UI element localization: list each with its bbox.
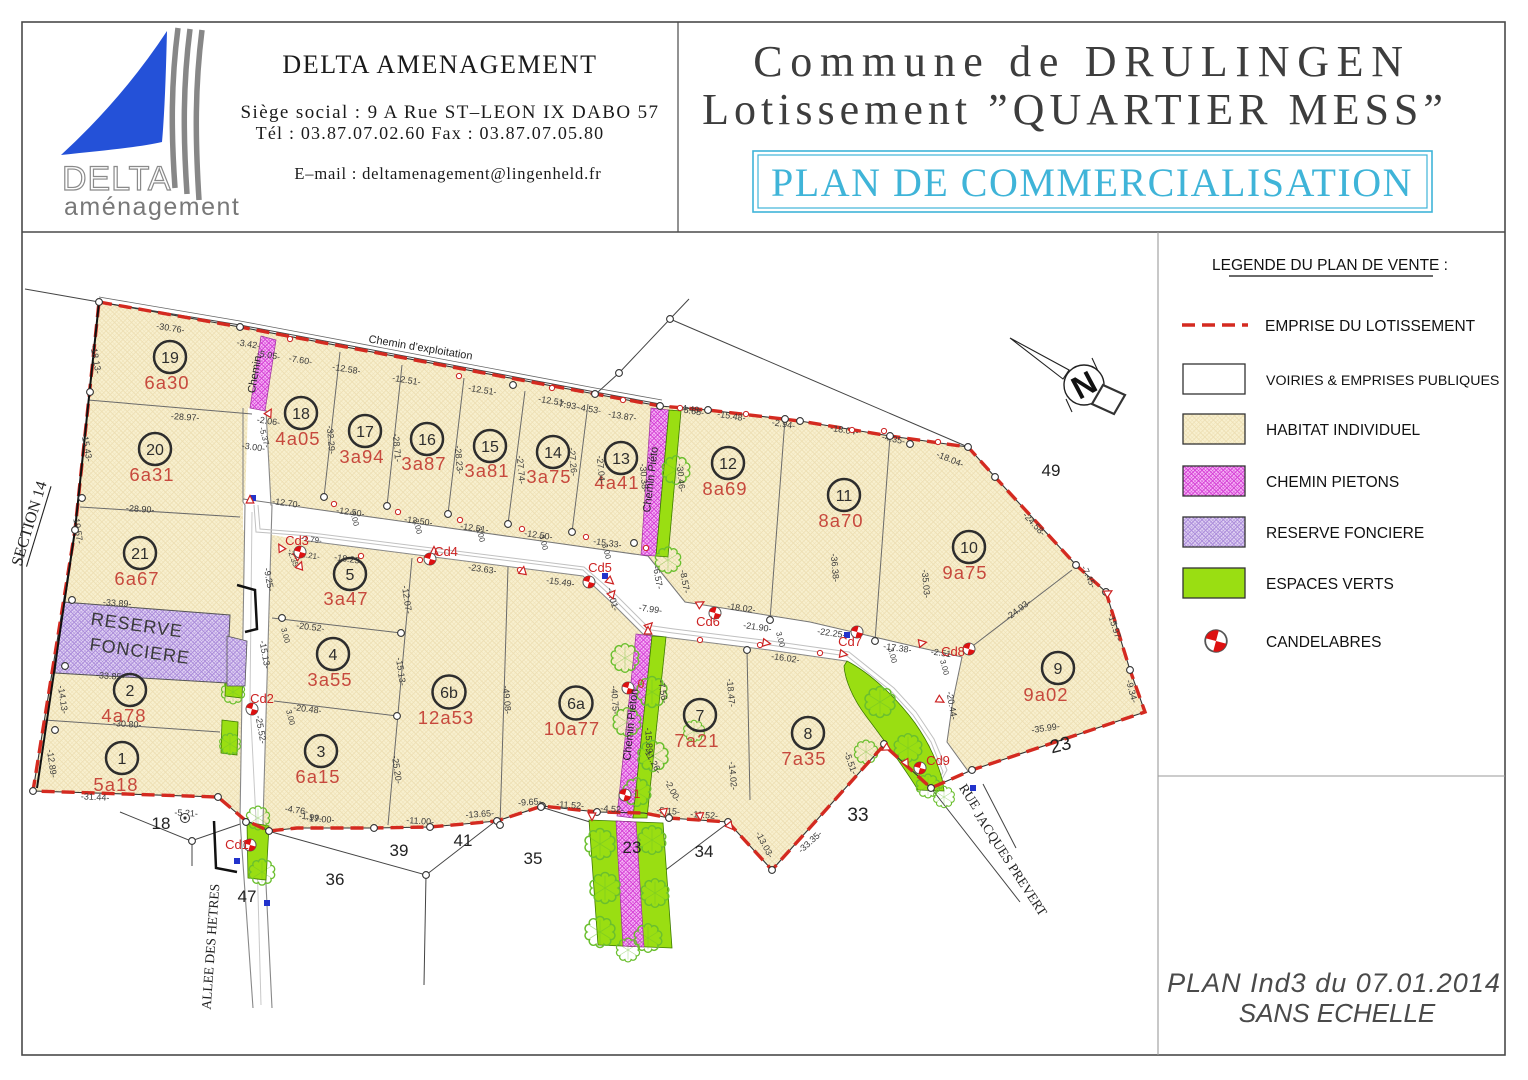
- svg-text:Commune de DRULINGEN: Commune de DRULINGEN: [753, 37, 1411, 86]
- svg-text:3: 3: [317, 744, 326, 761]
- svg-text:6a31: 6a31: [129, 464, 174, 485]
- svg-text:JACQUES PREVERT: JACQUES PREVERT: [971, 808, 1050, 919]
- svg-text:23: 23: [623, 838, 642, 857]
- svg-text:6a: 6a: [567, 696, 585, 713]
- svg-text:19: 19: [161, 350, 179, 367]
- svg-text:21: 21: [131, 546, 149, 563]
- svg-text:12: 12: [719, 456, 737, 473]
- svg-text:HABITAT INDIVIDUEL: HABITAT INDIVIDUEL: [1266, 422, 1421, 439]
- svg-text:Tél : 03.87.07.02.60 Fax : 03: Tél : 03.87.07.02.60 Fax : 03.87.07.05.8…: [256, 123, 605, 143]
- svg-text:35: 35: [524, 849, 543, 868]
- svg-text:Siège social : 9 A Rue ST–LEO: Siège social : 9 A Rue ST–LEON IX DABO 5…: [241, 102, 660, 123]
- svg-text:3a47: 3a47: [323, 588, 368, 609]
- svg-text:-13.65-: -13.65-: [465, 808, 494, 820]
- svg-text:3a81: 3a81: [464, 460, 509, 481]
- svg-text:2: 2: [126, 683, 135, 700]
- svg-text:7a21: 7a21: [674, 730, 719, 751]
- svg-text:11: 11: [836, 488, 853, 505]
- svg-text:9a02: 9a02: [1023, 684, 1068, 705]
- svg-text:4a05: 4a05: [275, 428, 320, 449]
- svg-text:36: 36: [326, 870, 345, 889]
- svg-text:8a69: 8a69: [702, 478, 747, 499]
- svg-text:-40.75-: -40.75-: [609, 685, 620, 714]
- svg-text:10: 10: [960, 540, 978, 557]
- svg-text:41: 41: [454, 831, 473, 850]
- svg-text:E–mail : deltamenagement@linge: E–mail : deltamenagement@lingenheld.fr: [294, 164, 601, 183]
- svg-text:RUE: RUE: [956, 781, 983, 812]
- svg-text:7a35: 7a35: [781, 748, 826, 769]
- svg-text:5: 5: [346, 567, 355, 584]
- svg-text:RESERVE FONCIERE: RESERVE FONCIERE: [1266, 525, 1424, 542]
- svg-text:9a75: 9a75: [942, 562, 987, 583]
- svg-text:Cd4: Cd4: [434, 544, 458, 559]
- svg-text:aménagement: aménagement: [64, 193, 240, 221]
- svg-text:PLAN DE COMMERCIALISATION: PLAN DE COMMERCIALISATION: [771, 160, 1413, 205]
- svg-text:13: 13: [612, 451, 630, 468]
- svg-text:1: 1: [118, 751, 127, 768]
- svg-text:6a67: 6a67: [114, 568, 159, 589]
- svg-text:34: 34: [695, 842, 714, 861]
- svg-text:Lotissement ”QUARTIER MESS”: Lotissement ”QUARTIER MESS”: [702, 85, 1448, 134]
- svg-text:49: 49: [1042, 461, 1061, 480]
- svg-text:-33.85-: -33.85-: [96, 670, 125, 682]
- svg-text:12a53: 12a53: [418, 707, 474, 728]
- svg-text:8: 8: [804, 726, 813, 743]
- svg-text:Cd6: Cd6: [696, 614, 720, 629]
- svg-text:6b: 6b: [440, 685, 458, 702]
- svg-text:DELTA AMENAGEMENT: DELTA AMENAGEMENT: [282, 50, 597, 79]
- svg-text:ESPACES VERTS: ESPACES VERTS: [1266, 576, 1394, 593]
- svg-text:18: 18: [292, 406, 310, 423]
- svg-text:9: 9: [1054, 661, 1063, 678]
- svg-text:-33.89-: -33.89-: [103, 597, 132, 609]
- svg-text:3a94: 3a94: [339, 446, 384, 467]
- svg-text:-28.90-: -28.90-: [126, 503, 155, 515]
- svg-text:10a77: 10a77: [544, 718, 600, 739]
- svg-text:18: 18: [152, 814, 171, 833]
- svg-text:4: 4: [329, 647, 338, 664]
- svg-text:3a55: 3a55: [307, 669, 352, 690]
- svg-text:6a15: 6a15: [295, 766, 340, 787]
- svg-text:0: 0: [638, 677, 645, 691]
- svg-text:-11.52-: -11.52-: [556, 799, 584, 811]
- svg-text:PLAN Ind3 du 07.01.2014: PLAN Ind3 du 07.01.2014: [1167, 968, 1501, 998]
- svg-text:Cd1: Cd1: [225, 837, 249, 852]
- svg-text:EMPRISE DU LOTISSEMENT: EMPRISE DU LOTISSEMENT: [1265, 318, 1476, 335]
- svg-text:3a75: 3a75: [526, 466, 571, 487]
- svg-text:CHEMIN PIETONS: CHEMIN PIETONS: [1266, 474, 1399, 491]
- svg-text:-11.52-: -11.52-: [690, 809, 718, 821]
- svg-text:16: 16: [418, 432, 436, 449]
- svg-text:33: 33: [847, 805, 868, 826]
- svg-text:-28.97-: -28.97-: [171, 411, 200, 423]
- svg-text:14: 14: [544, 445, 562, 462]
- svg-text:ALLEE DES HETRES: ALLEE DES HETRES: [199, 883, 223, 1010]
- svg-text:Cd2: Cd2: [250, 691, 274, 706]
- svg-text:15: 15: [481, 439, 499, 456]
- svg-text:-30.80-: -30.80-: [113, 718, 142, 730]
- svg-text:3a87: 3a87: [401, 453, 446, 474]
- svg-text:SANS ECHELLE: SANS ECHELLE: [1239, 998, 1436, 1028]
- svg-text:39: 39: [390, 841, 409, 860]
- svg-text:-4.52-: -4.52-: [600, 803, 624, 815]
- svg-text:Cd9: Cd9: [926, 753, 950, 768]
- svg-text:Cd8: Cd8: [941, 644, 965, 659]
- svg-text:Cd3: Cd3: [285, 533, 309, 548]
- svg-text:VOIRIES & EMPRISES PUBLIQUES: VOIRIES & EMPRISES PUBLIQUES: [1266, 373, 1499, 389]
- svg-text:1: 1: [634, 787, 641, 801]
- svg-text:47: 47: [238, 887, 257, 906]
- svg-text:Cd7: Cd7: [838, 634, 862, 649]
- svg-text:7: 7: [696, 708, 705, 725]
- svg-text:6a30: 6a30: [144, 372, 189, 393]
- svg-text:CANDELABRES: CANDELABRES: [1266, 634, 1381, 651]
- svg-text:8a70: 8a70: [818, 510, 863, 531]
- svg-text:20: 20: [146, 442, 164, 459]
- svg-text:Cd5: Cd5: [588, 560, 612, 575]
- svg-text:17: 17: [356, 424, 374, 441]
- svg-text:LEGENDE DU PLAN DE VENTE :: LEGENDE DU PLAN DE VENTE :: [1212, 257, 1448, 274]
- svg-text:-31.44-: -31.44-: [81, 791, 110, 802]
